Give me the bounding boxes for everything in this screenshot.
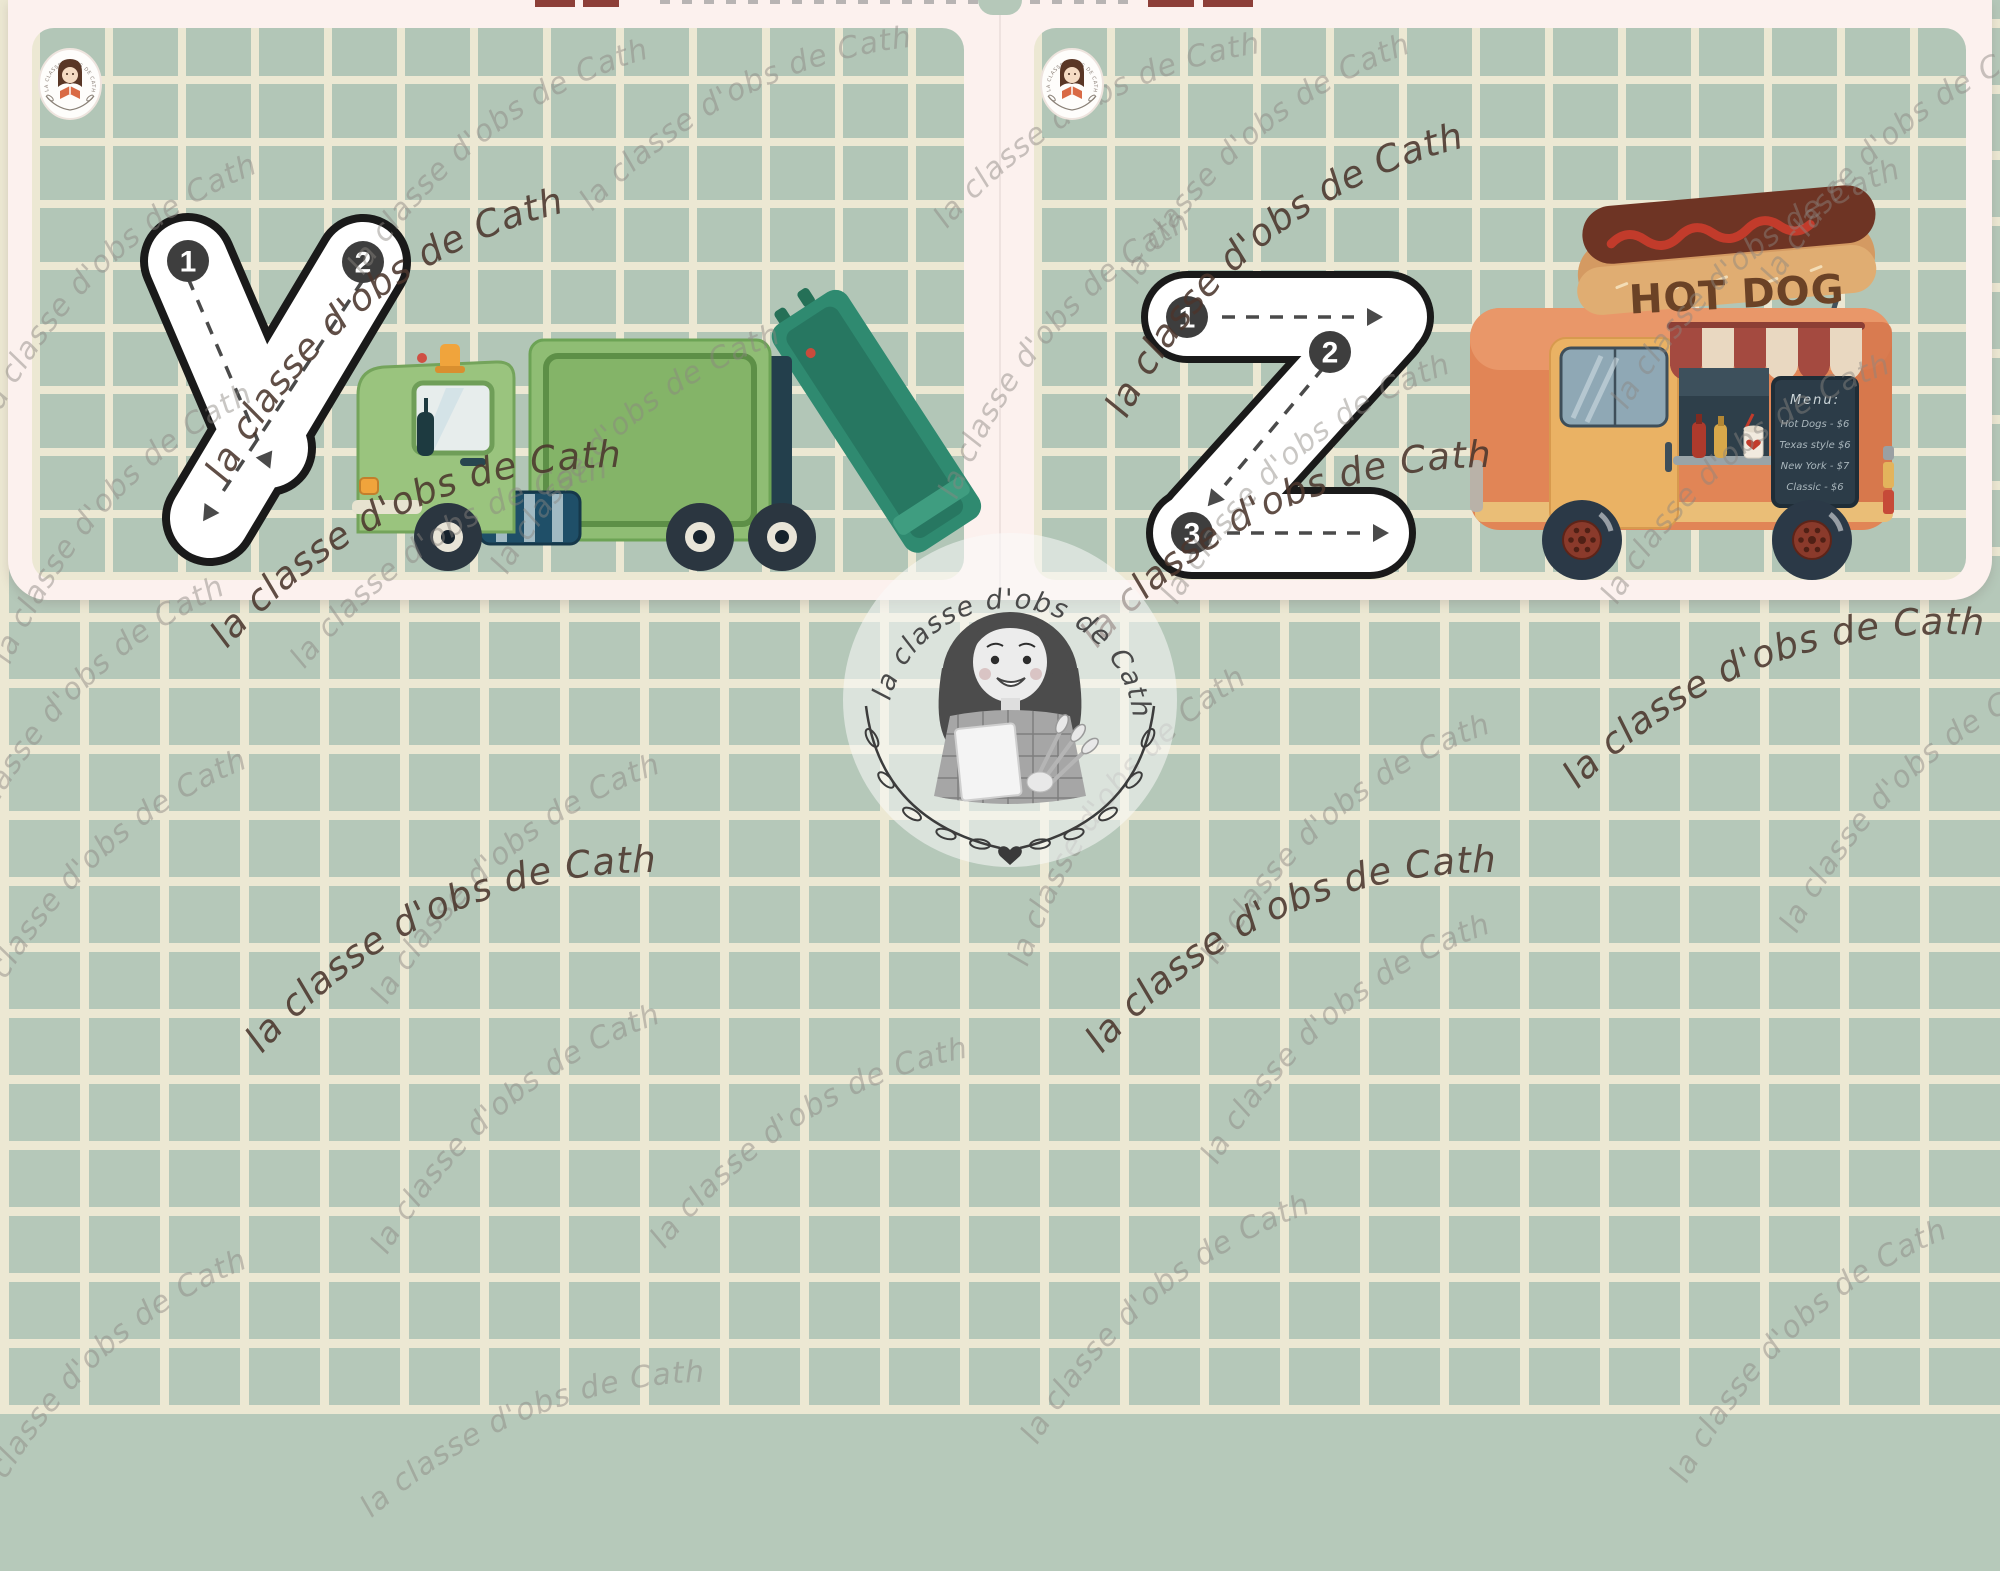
svg-text:2: 2 [1322,337,1339,370]
svg-text:Classic - $6: Classic - $6 [1786,482,1843,493]
svg-text:Hot Dogs - $6: Hot Dogs - $6 [1781,419,1850,430]
page-top-fragment [660,0,980,4]
corner-brand-badge: LA CLASSE D'OBS DE CATH [36,46,104,122]
side-mirror [417,412,434,456]
wheel [748,503,816,571]
stroke-badge-1: 1 [1166,296,1208,338]
stroke-badge-2: 2 [1309,331,1351,373]
svg-text:Texas style $6: Texas style $6 [1779,440,1850,451]
ketchup-bottle [1692,422,1706,458]
notebook [955,723,1022,801]
menu-chalkboard: Menu: Hot Dogs - $6 Texas style $6 New Y… [1773,378,1857,506]
svg-text:3: 3 [1184,518,1201,551]
door-handle [1665,442,1672,472]
corner-brand-badge: LA CLASSE D'OBS DE CATH [1038,46,1106,122]
truck-cab [352,344,514,532]
page-top-fragment [1148,0,1194,7]
door-handle [460,458,486,466]
wheel [666,503,734,571]
front-bumper [352,500,422,514]
wheel [1542,500,1622,580]
mustard-bottle [1714,424,1727,458]
stroke-badge-1: 1 [167,240,209,282]
wheel [1772,500,1852,580]
svg-text:New York - $7: New York - $7 [1781,461,1850,472]
wheel [414,503,482,571]
card-divider-seam [999,0,1001,598]
cab-red-light [417,353,427,363]
page-top-fragment [535,0,575,7]
page-top-fragment [1203,0,1253,7]
service-window [1673,368,1777,465]
hot-dog-truck-illustration: Menu: Hot Dogs - $6 Texas style $6 New Y… [1455,150,1915,590]
headlight-bar [1470,460,1483,512]
svg-text:1: 1 [180,246,197,279]
svg-text:Menu:: Menu: [1790,393,1840,408]
cab-door [1550,338,1678,528]
page-top-fragment [1030,0,1140,4]
page-top-fragment [583,0,619,7]
tail-light [1883,490,1894,514]
front-signal [360,478,378,494]
brand-logo: la classe d'obs de Cath [838,528,1182,872]
svg-text:1: 1 [1179,302,1196,335]
worksheet-page: { "watermark": { "text": "la classe d'ob… [0,0,2000,1414]
